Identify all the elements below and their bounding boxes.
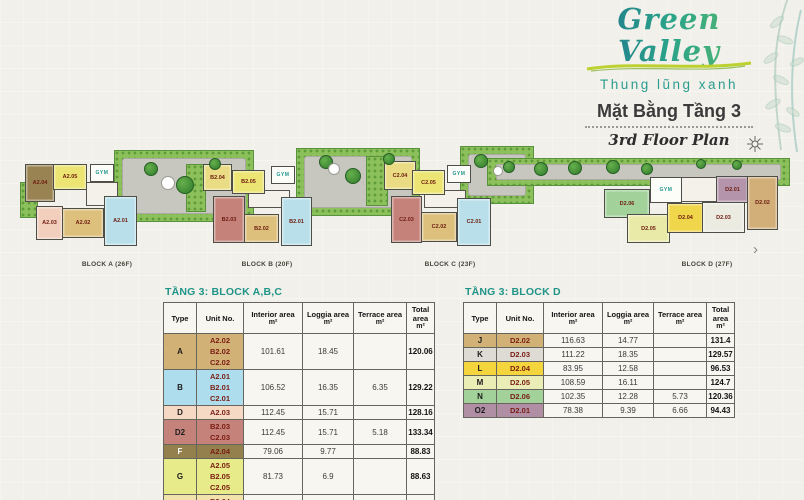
unit-no-cell: D2.01 [497, 404, 544, 418]
interior-area-cell: 101.61 [244, 334, 303, 370]
unit-number: D2.02 [497, 335, 543, 346]
terrace-area-cell: 5.18 [354, 420, 407, 445]
table-row: O2D2.0178.389.396.6694.43 [464, 404, 735, 418]
unit-area-table: TypeUnit No.Interior aream²Loggia aream²… [163, 302, 435, 500]
table-row: AA2.02B2.02C2.02101.6118.45120.06 [164, 334, 435, 370]
unit-number: B2.01 [197, 382, 243, 393]
tree-icon [606, 160, 620, 174]
unit-number: A2.02 [197, 335, 243, 346]
table-row: D2B2.03C2.03112.4515.715.18133.34 [164, 420, 435, 445]
type-cell: A [164, 334, 197, 370]
column-header: Unit No. [497, 303, 544, 334]
unit-label: B2.05 [241, 179, 256, 185]
total-area-cell: 88.63 [407, 459, 435, 495]
apartment-unit: B2.05 [232, 170, 265, 194]
loggia-area-cell: 9.77 [303, 445, 354, 459]
apartment-unit: D2.02 [747, 176, 778, 230]
gym-room: GYM [90, 164, 114, 182]
interior-area-cell: 78.38 [544, 404, 603, 418]
terrace-area-cell: 6.66 [654, 404, 707, 418]
table-row: ND2.06102.3512.285.73120.36 [464, 390, 735, 404]
unit-label: C2.01 [467, 219, 482, 225]
unit-label: B2.02 [254, 226, 269, 232]
apartment-unit: B2.01 [281, 197, 312, 246]
tree-icon [144, 162, 158, 176]
unit-number: A2.01 [197, 371, 243, 382]
type-cell: M [464, 376, 497, 390]
apartment-unit: C2.02 [421, 212, 457, 242]
unit-number: C2.05 [197, 482, 243, 493]
total-area-cell: 120.06 [407, 334, 435, 370]
table-row: GA2.05B2.05C2.0581.736.988.63 [164, 459, 435, 495]
total-area-cell: 131.4 [707, 334, 735, 348]
terrace-area-cell [654, 362, 707, 376]
unit-label: C2.02 [432, 224, 447, 230]
apartment-unit: D2.05 [627, 214, 670, 243]
total-area-cell: 88.12 [407, 495, 435, 500]
unit-number: B2.05 [197, 471, 243, 482]
type-cell: D [164, 406, 197, 420]
column-header: Loggia aream² [303, 303, 354, 334]
apartment-unit: D2.01 [716, 176, 749, 203]
terrace-area-cell [354, 459, 407, 495]
logo-swoosh-decoration [578, 59, 760, 77]
loggia-area-cell: 15.71 [303, 420, 354, 445]
apartment-unit: C2.01 [457, 198, 491, 246]
unit-label: C2.05 [421, 180, 436, 186]
loggia-area-cell: 12.28 [603, 390, 654, 404]
service-core [681, 177, 717, 202]
unit-number: C2.01 [197, 393, 243, 404]
tree-icon [696, 159, 706, 169]
tree-icon [568, 161, 582, 175]
dotted-divider [585, 126, 753, 128]
terrace-area-cell [654, 376, 707, 390]
interior-area-cell: 111.22 [544, 348, 603, 362]
unit-number: A2.04 [197, 446, 243, 457]
table-row: MD2.05108.5916.11124.7 [464, 376, 735, 390]
apartment-unit: C2.03 [391, 196, 422, 243]
unit-label: A2.05 [63, 174, 78, 180]
apartment-unit: B2.02 [244, 214, 279, 243]
loggia-area-cell: 6.9 [303, 459, 354, 495]
apartment-unit: D2.03 [702, 202, 745, 233]
unit-no-cell: A2.04 [197, 445, 244, 459]
unit-label: B2.01 [289, 219, 304, 225]
terrace-area-cell [354, 334, 407, 370]
unit-label: B2.03 [222, 217, 237, 223]
total-area-cell: 120.36 [707, 390, 735, 404]
unit-no-cell: D2.04 [497, 362, 544, 376]
table-row: FA2.0479.069.7788.83 [164, 445, 435, 459]
unit-number: A2.05 [197, 460, 243, 471]
unit-no-cell: B2.03C2.03 [197, 420, 244, 445]
column-header: Type [464, 303, 497, 334]
type-cell: J [464, 334, 497, 348]
unit-no-cell: D2.05 [497, 376, 544, 390]
loggia-area-cell [303, 495, 354, 500]
apartment-unit: A2.05 [53, 164, 87, 190]
unit-label: C2.03 [399, 217, 414, 223]
unit-area-table: TypeUnit No.Interior aream²Loggia aream²… [463, 302, 735, 418]
area-table-block-d: TẦNG 3: BLOCK D TypeUnit No.Interior are… [463, 286, 735, 418]
unit-number: D2.03 [497, 349, 543, 360]
unit-label: B2.04 [210, 175, 225, 181]
apartment-unit: A2.01 [104, 196, 137, 246]
column-header: Interior aream² [544, 303, 603, 334]
header-row: TypeUnit No.Interior aream²Loggia aream²… [164, 303, 435, 334]
unit-label: D2.03 [716, 215, 731, 221]
total-area-cell: 96.53 [707, 362, 735, 376]
type-cell: L [464, 362, 497, 376]
total-area-cell: 129.22 [407, 370, 435, 406]
type-cell: N [464, 390, 497, 404]
terrace-area-cell [354, 445, 407, 459]
tree-icon [345, 168, 361, 184]
unit-label: D2.06 [620, 201, 635, 207]
loggia-area-cell: 9.39 [603, 404, 654, 418]
terrace-area-cell: 6.35 [354, 370, 407, 406]
unit-number: D2.01 [497, 405, 543, 416]
unit-label: A2.01 [113, 218, 128, 224]
unit-label: D2.02 [755, 200, 770, 206]
type-cell: K [464, 348, 497, 362]
gym-room: GYM [650, 177, 682, 203]
column-header: Total aream² [707, 303, 735, 334]
tree-icon [383, 153, 395, 165]
tree-icon [641, 163, 653, 175]
next-arrow-icon[interactable]: › [753, 242, 758, 257]
interior-area-cell: 106.52 [244, 370, 303, 406]
unit-no-cell: D2.06 [497, 390, 544, 404]
unit-label: A2.03 [42, 220, 57, 226]
tree-icon [503, 161, 515, 173]
floor-plan-title-en: 3rd Floor Plan [578, 131, 760, 149]
pool-icon [161, 176, 175, 190]
interior-area-cell: 112.45 [244, 406, 303, 420]
total-area-cell: 94.43 [707, 404, 735, 418]
column-header: Terrace aream² [654, 303, 707, 334]
table-row: KD2.03111.2218.35129.57 [464, 348, 735, 362]
unit-number: C2.02 [197, 357, 243, 368]
area-table-block-abc: TẦNG 3: BLOCK A,B,C TypeUnit No.Interior… [163, 286, 435, 500]
loggia-area-cell: 15.71 [303, 406, 354, 420]
brand-header: Green Valley Thung lũng xanh Mặt Bằng Tầ… [578, 4, 760, 149]
table-row: JD2.02116.6314.77131.4 [464, 334, 735, 348]
interior-area-cell: 112.45 [244, 420, 303, 445]
table-title: TẦNG 3: BLOCK D [465, 286, 735, 298]
table-title: TẦNG 3: BLOCK A,B,C [165, 286, 435, 298]
loggia-area-cell: 16.35 [303, 370, 354, 406]
apartment-unit: A2.04 [25, 164, 55, 202]
pool-icon [328, 163, 340, 175]
unit-label: C2.04 [393, 173, 408, 179]
gym-room: GYM [271, 166, 295, 184]
terrace-area-cell [654, 348, 707, 362]
block-label: BLOCK D (27F) [682, 261, 733, 268]
block-label: BLOCK A (26F) [82, 261, 132, 268]
loggia-area-cell: 12.58 [603, 362, 654, 376]
type-cell: G [164, 459, 197, 495]
floor-plan-title-vi: Mặt Bằng Tầng 3 [578, 101, 760, 122]
column-header: Terrace aream² [354, 303, 407, 334]
unit-number: B2.03 [197, 421, 243, 432]
interior-area-cell: 108.59 [544, 376, 603, 390]
block-label: BLOCK B (20F) [242, 261, 293, 268]
tree-icon [732, 160, 742, 170]
brand-tagline: Thung lũng xanh [578, 77, 760, 92]
unit-no-cell: D2.03 [497, 348, 544, 362]
type-cell: B [164, 370, 197, 406]
loggia-area-cell: 18.35 [603, 348, 654, 362]
type-cell: H [164, 495, 197, 500]
terrace-area-cell: 5.73 [654, 390, 707, 404]
gym-room: GYM [447, 165, 471, 183]
tree-icon [209, 158, 221, 170]
unit-number: D2.05 [497, 377, 543, 388]
column-header: Interior aream² [244, 303, 303, 334]
interior-area-cell: 73 [244, 495, 303, 500]
interior-area-cell: 83.95 [544, 362, 603, 376]
total-area-cell: 133.34 [407, 420, 435, 445]
table-row: BA2.01B2.01C2.01106.5216.356.35129.22 [164, 370, 435, 406]
unit-number: D2.04 [497, 363, 543, 374]
brochure-page: Green Valley Thung lũng xanh Mặt Bằng Tầ… [0, 0, 804, 500]
type-cell: O2 [464, 404, 497, 418]
unit-no-cell: B2.04C2.04 [197, 495, 244, 500]
unit-label: D2.01 [725, 187, 740, 193]
column-header: Total aream² [407, 303, 435, 334]
terrace-area-cell: 15.12 [354, 495, 407, 500]
unit-label: A2.04 [33, 180, 48, 186]
unit-no-cell: A2.02B2.02C2.02 [197, 334, 244, 370]
column-header: Unit No. [197, 303, 244, 334]
loggia-area-cell: 18.45 [303, 334, 354, 370]
unit-number: B2.04 [197, 496, 243, 500]
total-area-cell: 129.57 [707, 348, 735, 362]
apartment-unit: B2.03 [213, 196, 245, 243]
loggia-area-cell: 16.11 [603, 376, 654, 390]
unit-no-cell: A2.05B2.05C2.05 [197, 459, 244, 495]
tree-icon [534, 162, 548, 176]
loggia-area-cell: 14.77 [603, 334, 654, 348]
unit-label: A2.02 [76, 220, 91, 226]
tree-icon [176, 176, 194, 194]
total-area-cell: 128.16 [407, 406, 435, 420]
unit-label: D2.04 [678, 215, 693, 221]
type-cell: F [164, 445, 197, 459]
unit-no-cell: D2.02 [497, 334, 544, 348]
interior-area-cell: 81.73 [244, 459, 303, 495]
total-area-cell: 124.7 [707, 376, 735, 390]
apartment-unit: C2.05 [412, 170, 445, 195]
interior-area-cell: 79.06 [244, 445, 303, 459]
unit-no-cell: A2.01B2.01C2.01 [197, 370, 244, 406]
unit-number: B2.02 [197, 346, 243, 357]
unit-number: C2.03 [197, 432, 243, 443]
terrace-area-cell [354, 406, 407, 420]
header-row: TypeUnit No.Interior aream²Loggia aream²… [464, 303, 735, 334]
unit-number: D2.06 [497, 391, 543, 402]
column-header: Type [164, 303, 197, 334]
block-label: BLOCK C (23F) [425, 261, 476, 268]
total-area-cell: 88.83 [407, 445, 435, 459]
table-row: DA2.03112.4515.71128.16 [164, 406, 435, 420]
table-row: HB2.04C2.047315.1288.12 [164, 495, 435, 500]
pool-icon [493, 166, 503, 176]
interior-area-cell: 116.63 [544, 334, 603, 348]
table-row: LD2.0483.9512.5896.53 [464, 362, 735, 376]
apartment-unit: D2.04 [667, 203, 704, 233]
unit-no-cell: A2.03 [197, 406, 244, 420]
type-cell: D2 [164, 420, 197, 445]
interior-area-cell: 102.35 [544, 390, 603, 404]
column-header: Loggia aream² [603, 303, 654, 334]
apartment-unit: A2.02 [62, 208, 104, 238]
tree-icon [474, 154, 488, 168]
unit-number: A2.03 [197, 407, 243, 418]
terrace-area-cell [654, 334, 707, 348]
unit-label: D2.05 [641, 226, 656, 232]
apartment-unit: A2.03 [36, 206, 63, 240]
